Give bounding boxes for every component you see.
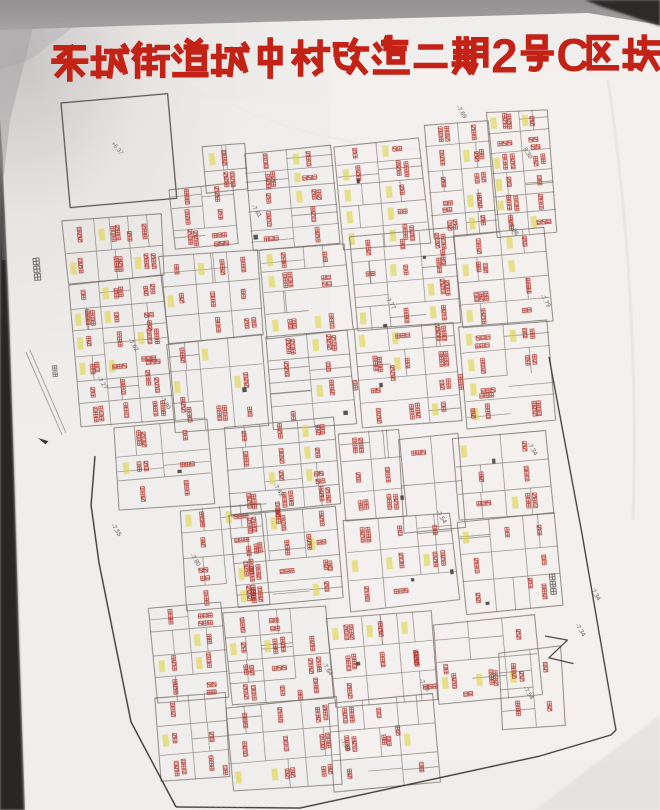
svg-text:C: C	[556, 29, 589, 81]
svg-text:2: 2	[491, 30, 518, 83]
